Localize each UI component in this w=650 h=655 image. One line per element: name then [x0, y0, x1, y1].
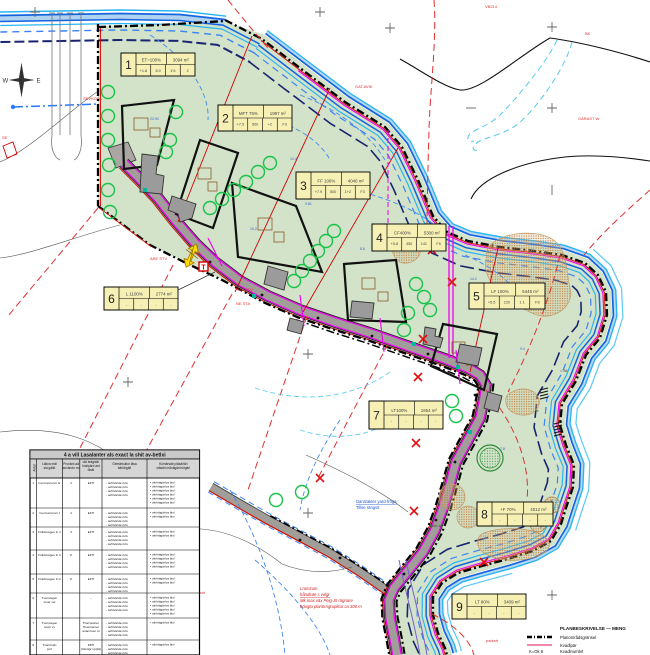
- svg-text:+5.8: +5.8: [391, 242, 399, 246]
- svg-text:Centrumtorvs f: Centrumtorvs f: [39, 511, 59, 515]
- svg-text:• värlrtägärlva läsl: • värlrtägärlva läsl: [150, 501, 175, 505]
- svg-text:4046 m²: 4046 m²: [348, 179, 365, 184]
- svg-text:–: –: [90, 596, 92, 600]
- svg-text:500: 500: [252, 123, 258, 127]
- svg-text:2774 m²: 2774 m²: [156, 292, 173, 297]
- svg-text:GARAST W: GARAST W: [578, 116, 599, 121]
- svg-text:- terltlvärda rivls: - terltlvärda rivls: [106, 633, 128, 637]
- svg-text:ET=100%: ET=100%: [142, 58, 162, 63]
- svg-text:släsärl mänägärürürgärl: släsärl mänägärürürgärl: [156, 466, 190, 470]
- svg-text:6.2: 6.2: [430, 597, 435, 601]
- svg-text:(Vanägr upplä): (Vanägr upplä): [81, 647, 101, 651]
- svg-text:SE: SE: [2, 135, 8, 140]
- svg-text:- terltlvärda rivls: - terltlvärda rivls: [106, 493, 128, 497]
- svg-text:Mk max väx Peig-St rägnare: Mk max väx Peig-St rägnare: [300, 598, 353, 603]
- svg-text:4: 4: [70, 530, 72, 534]
- svg-text:E: E: [37, 79, 41, 85]
- svg-text:5: 5: [473, 290, 480, 304]
- svg-text:4: 4: [70, 511, 72, 515]
- svg-text:8: 8: [70, 553, 72, 557]
- svg-text:pxrl: pxrl: [47, 647, 52, 651]
- svg-text:EFH: EFH: [88, 553, 94, 557]
- svg-text:LT100%: LT100%: [391, 408, 407, 413]
- svg-text:W: W: [3, 79, 9, 85]
- svg-text:MFT 75%: MFT 75%: [239, 111, 258, 116]
- svg-text:Tillse rängvit: Tillse rängvit: [356, 505, 380, 510]
- svg-text:Fritidsvagen ln k: Fritidsvagen ln k: [38, 577, 61, 581]
- svg-text:9.81: 9.81: [305, 202, 312, 206]
- svg-text:+5.5: +5.5: [488, 301, 496, 305]
- svg-text:CF400%: CF400%: [394, 231, 411, 236]
- svg-text:220: 220: [504, 301, 510, 305]
- svg-text:3: 3: [300, 179, 307, 193]
- svg-text:7.8: 7.8: [500, 447, 505, 451]
- svg-text:3: 3: [32, 530, 34, 534]
- svg-text:SEVKOPA: SEVKOPA: [83, 96, 102, 101]
- svg-text:9.4: 9.4: [520, 347, 525, 351]
- svg-text:500: 500: [330, 190, 336, 194]
- svg-text:• värlrtägärlva läsl: • värlrtägärlva läsl: [150, 612, 175, 616]
- svg-text:1: 1: [32, 481, 34, 485]
- svg-text:- terltlvärda rivls: - terltlvärda rivls: [106, 651, 128, 655]
- svg-text:1+2: 1+2: [345, 190, 351, 194]
- svg-text:Fritidsvagen ln b: Fritidsvagen ln b: [38, 553, 61, 557]
- svg-text:- terltlvärda rivls: - terltlvärda rivls: [106, 589, 128, 593]
- svg-text:6: 6: [32, 596, 34, 600]
- svg-text:T: T: [201, 265, 206, 272]
- svg-text:22.93: 22.93: [150, 117, 159, 121]
- svg-text:håndtute s volgr: håndtute s volgr: [300, 592, 330, 597]
- svg-text:1 1: 1 1: [519, 301, 524, 305]
- svg-text:Antal: Antal: [32, 464, 36, 472]
- svg-text:14.2: 14.2: [470, 277, 477, 281]
- svg-text:GAT.AVIK: GAT.AVIK: [355, 84, 373, 89]
- svg-text:+F 70%: +F 70%: [500, 507, 515, 512]
- svg-text:smar vx: smar vx: [44, 625, 55, 629]
- svg-text:• värlrtägärlva läsl: • värlrtägärlva läsl: [150, 534, 175, 538]
- svg-text:F3: F3: [282, 123, 286, 127]
- svg-text:sla gälkt: sla gälkt: [44, 466, 56, 470]
- svg-text:+7.9: +7.9: [315, 190, 323, 194]
- svg-text:- terltlvärda rivls: - terltlvärda rivls: [106, 565, 128, 569]
- svg-text:bärlärgärl: bärlärgärl: [118, 466, 132, 470]
- svg-text:• värlrtägärlva läsl: • värlrtägärlva läsl: [150, 565, 175, 569]
- svg-text:3409 m²: 3409 m²: [504, 600, 521, 605]
- svg-text:4012 m²: 4012 m²: [530, 507, 547, 512]
- svg-text:FF 100%: FF 100%: [317, 179, 335, 184]
- svg-text:+7.5: +7.5: [237, 123, 245, 127]
- svg-text:• värlrtägärlva läsl: • värlrtägärlva läsl: [150, 581, 175, 585]
- svg-text:1997 m²: 1997 m²: [270, 111, 287, 116]
- svg-text:2: 2: [32, 511, 34, 515]
- svg-text:5445 m²: 5445 m²: [522, 289, 539, 294]
- svg-text:• värlrtägärlva läsl: • värlrtägärlva läsl: [150, 621, 175, 625]
- svg-text:1: 1: [125, 58, 132, 72]
- svg-text:• värlrtägärlva läsl: • värlrtägärlva läsl: [150, 643, 175, 647]
- svg-text:EFH: EFH: [88, 577, 94, 581]
- svg-text:8.6: 8.6: [360, 247, 365, 251]
- svg-text:• värlrtägärlva läsl: • värlrtägärlva läsl: [150, 515, 175, 519]
- svg-text:4: 4: [376, 231, 383, 245]
- svg-text:NE STA: NE STA: [236, 301, 250, 306]
- svg-text:Lromzum: Lromzum: [300, 586, 318, 591]
- svg-text:VB214: VB214: [485, 4, 498, 9]
- svg-text:8: 8: [70, 577, 72, 581]
- svg-text:141: 141: [421, 242, 427, 246]
- svg-text:användn m²: användn m²: [63, 466, 80, 470]
- svg-text:5: 5: [32, 577, 34, 581]
- svg-text:1654 m²: 1654 m²: [421, 408, 438, 413]
- svg-text:10.2: 10.2: [250, 227, 257, 231]
- svg-text:F9: F9: [535, 301, 539, 305]
- svg-text:Kvadlnumbrl: Kvadlnumbrl: [560, 649, 583, 654]
- svg-text:Lille-sk: Lille-sk: [430, 523, 442, 528]
- svg-text:Fritidsvagen ln 1: Fritidsvagen ln 1: [38, 530, 61, 534]
- svg-text:ek: ek: [535, 409, 539, 413]
- svg-text:F5: F5: [436, 242, 440, 246]
- svg-text:- terltlvärda rivls: - terltlvärda rivls: [106, 523, 128, 527]
- svg-text:EFH: EFH: [88, 481, 94, 485]
- svg-text:5300 m²: 5300 m²: [424, 231, 441, 236]
- svg-text:3094 m²: 3094 m²: [173, 58, 190, 63]
- svg-text:smar vel: smar vel: [44, 600, 56, 604]
- svg-text:1½: 1½: [170, 69, 176, 73]
- svg-text:EFH: EFH: [88, 530, 94, 534]
- svg-text:8: 8: [481, 508, 488, 522]
- svg-text:2: 2: [222, 112, 229, 126]
- svg-text:EFH: EFH: [88, 511, 94, 515]
- svg-text:PLANBESKRIVELSE — MENG: PLANBESKRIVELSE — MENG: [560, 626, 626, 631]
- svg-text:NE-STV: NE-STV: [238, 287, 253, 292]
- svg-text:4: 4: [32, 553, 34, 557]
- svg-text:= åll: = åll: [560, 368, 568, 373]
- svg-text:8: 8: [32, 643, 34, 647]
- svg-text:+1.8: +1.8: [140, 69, 148, 73]
- svg-text:anamhusr öl: anamhusr öl: [82, 629, 99, 633]
- svg-text:parkstr: parkstr: [486, 638, 499, 643]
- svg-text:K=Ok 8: K=Ok 8: [529, 649, 544, 654]
- svg-text:+2: +2: [268, 123, 272, 127]
- svg-text:450: 450: [406, 242, 412, 246]
- svg-text:LT 80%: LT 80%: [475, 600, 490, 605]
- svg-text:Centrumtorvs br: Centrumtorvs br: [38, 481, 60, 485]
- svg-text:- terltlvärda rivls: - terltlvärda rivls: [106, 608, 128, 612]
- svg-text:F3: F3: [360, 190, 364, 194]
- svg-text:9: 9: [456, 600, 463, 614]
- svg-text:6: 6: [108, 292, 115, 306]
- svg-text:12.4: 12.4: [290, 157, 297, 161]
- svg-text:BK: BK: [585, 31, 591, 36]
- svg-text:Planområdsgränsel: Planområdsgränsel: [560, 635, 596, 640]
- svg-text:4: 4: [70, 481, 72, 485]
- svg-text:ARE STV: ARE STV: [150, 256, 167, 261]
- svg-text:L 1100%: L 1100%: [126, 292, 143, 297]
- svg-text:LF 100%: LF 100%: [491, 289, 509, 294]
- svg-text:2: 2: [187, 69, 189, 73]
- svg-text:Dantzakter yard-fröga: Dantzakter yard-fröga: [356, 499, 397, 504]
- svg-text:7: 7: [373, 409, 380, 423]
- svg-text:dlsäl: dlsäl: [88, 468, 95, 472]
- svg-text:höogtu planörngrupktur ca 300: höogtu planörngrupktur ca 300 m: [300, 604, 362, 609]
- svg-text:4 a vill Lasalanter als exact: 4 a vill Lasalanter als exact la shit av…: [64, 453, 166, 459]
- svg-text:7: 7: [32, 621, 34, 625]
- svg-text:8.0: 8.0: [155, 69, 160, 73]
- svg-text:- terltlvärda rivls: - terltlvärda rivls: [106, 542, 128, 546]
- svg-text:Kvadlpär: Kvadlpär: [560, 643, 577, 648]
